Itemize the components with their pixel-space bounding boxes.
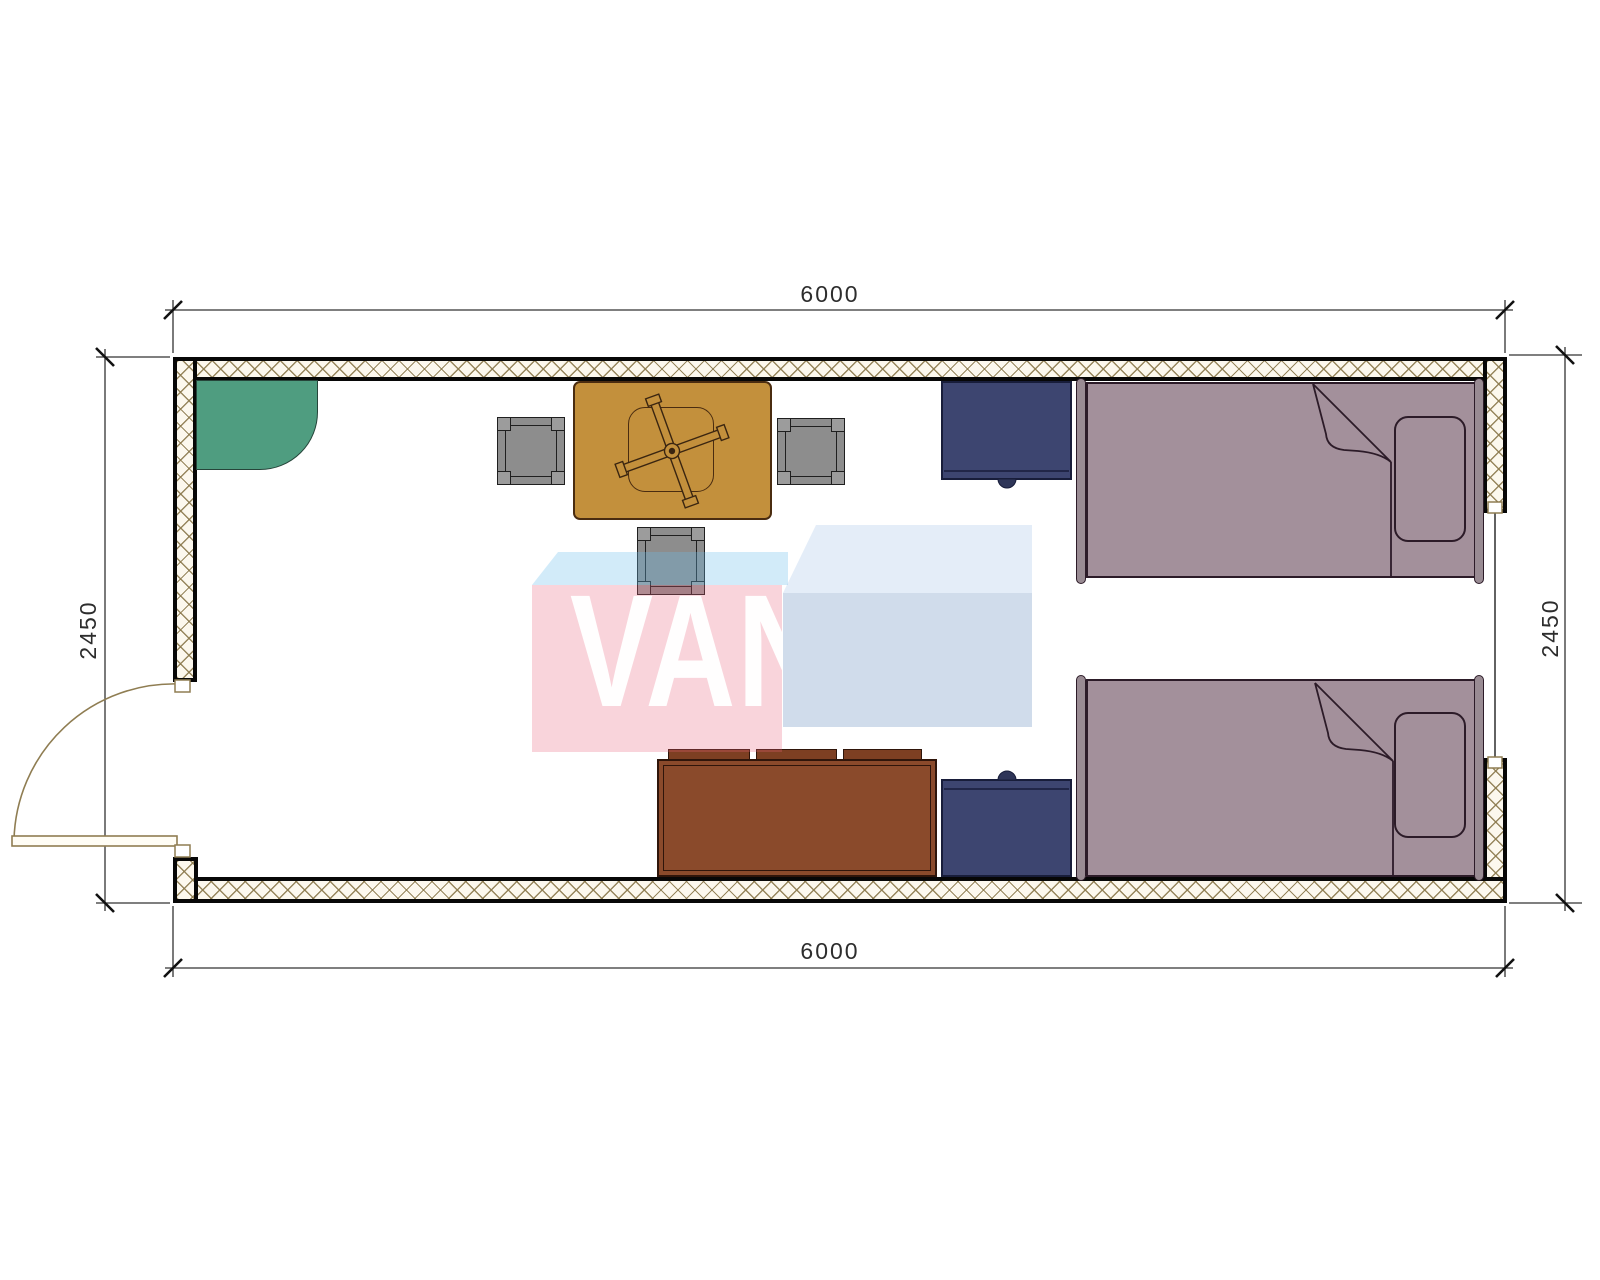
sofa	[657, 759, 937, 877]
nightstand-top-knob	[998, 479, 1016, 488]
door	[12, 680, 190, 857]
bed-top-pillow	[1394, 416, 1466, 542]
dimension-label-right: 2450	[1537, 578, 1567, 678]
bed-bottom-footboard	[1474, 675, 1484, 881]
window	[1488, 502, 1502, 768]
dimension-label-top: 6000	[760, 281, 900, 308]
stool-left	[497, 417, 565, 485]
floor-plan-canvas: VANDA 6000 6000 2450 2450	[0, 0, 1600, 1280]
door-swing-arc	[14, 684, 180, 840]
stool-leg	[777, 471, 791, 485]
stool-leg	[777, 418, 791, 432]
corner-unit	[196, 380, 318, 470]
door-leaf	[12, 836, 177, 846]
wall-top	[173, 357, 1507, 381]
door-jamb-hinge	[175, 845, 190, 857]
stool-leg	[831, 418, 845, 432]
stool-leg	[497, 417, 511, 431]
sofa-inner-outline	[663, 765, 931, 871]
stool-leg	[831, 471, 845, 485]
table-inner-outline	[628, 407, 714, 492]
stool-seat-outline	[505, 425, 557, 477]
wall-left	[173, 357, 197, 682]
wall-bottom-left-step	[173, 857, 198, 903]
stool-seat-outline	[785, 426, 837, 477]
dimension-label-bottom: 6000	[760, 938, 900, 965]
bed-top-headboard	[1076, 378, 1086, 584]
stool-leg	[551, 417, 565, 431]
stool-leg	[691, 527, 705, 541]
dimension-label-left: 2450	[75, 580, 105, 680]
stool-leg	[497, 471, 511, 485]
wall-right-upper	[1483, 357, 1507, 513]
bed-top-footboard	[1474, 378, 1484, 584]
table	[573, 381, 772, 520]
nightstand-top	[941, 381, 1072, 480]
nightstand-bottom	[941, 779, 1072, 877]
bed-bottom-headboard	[1076, 675, 1086, 881]
stool-leg	[551, 471, 565, 485]
wall-bottom	[173, 877, 1507, 903]
watermark-text: VANDA	[518, 571, 1064, 731]
stool-right	[777, 418, 845, 485]
bed-bottom-pillow	[1394, 712, 1466, 838]
stool-leg	[637, 527, 651, 541]
